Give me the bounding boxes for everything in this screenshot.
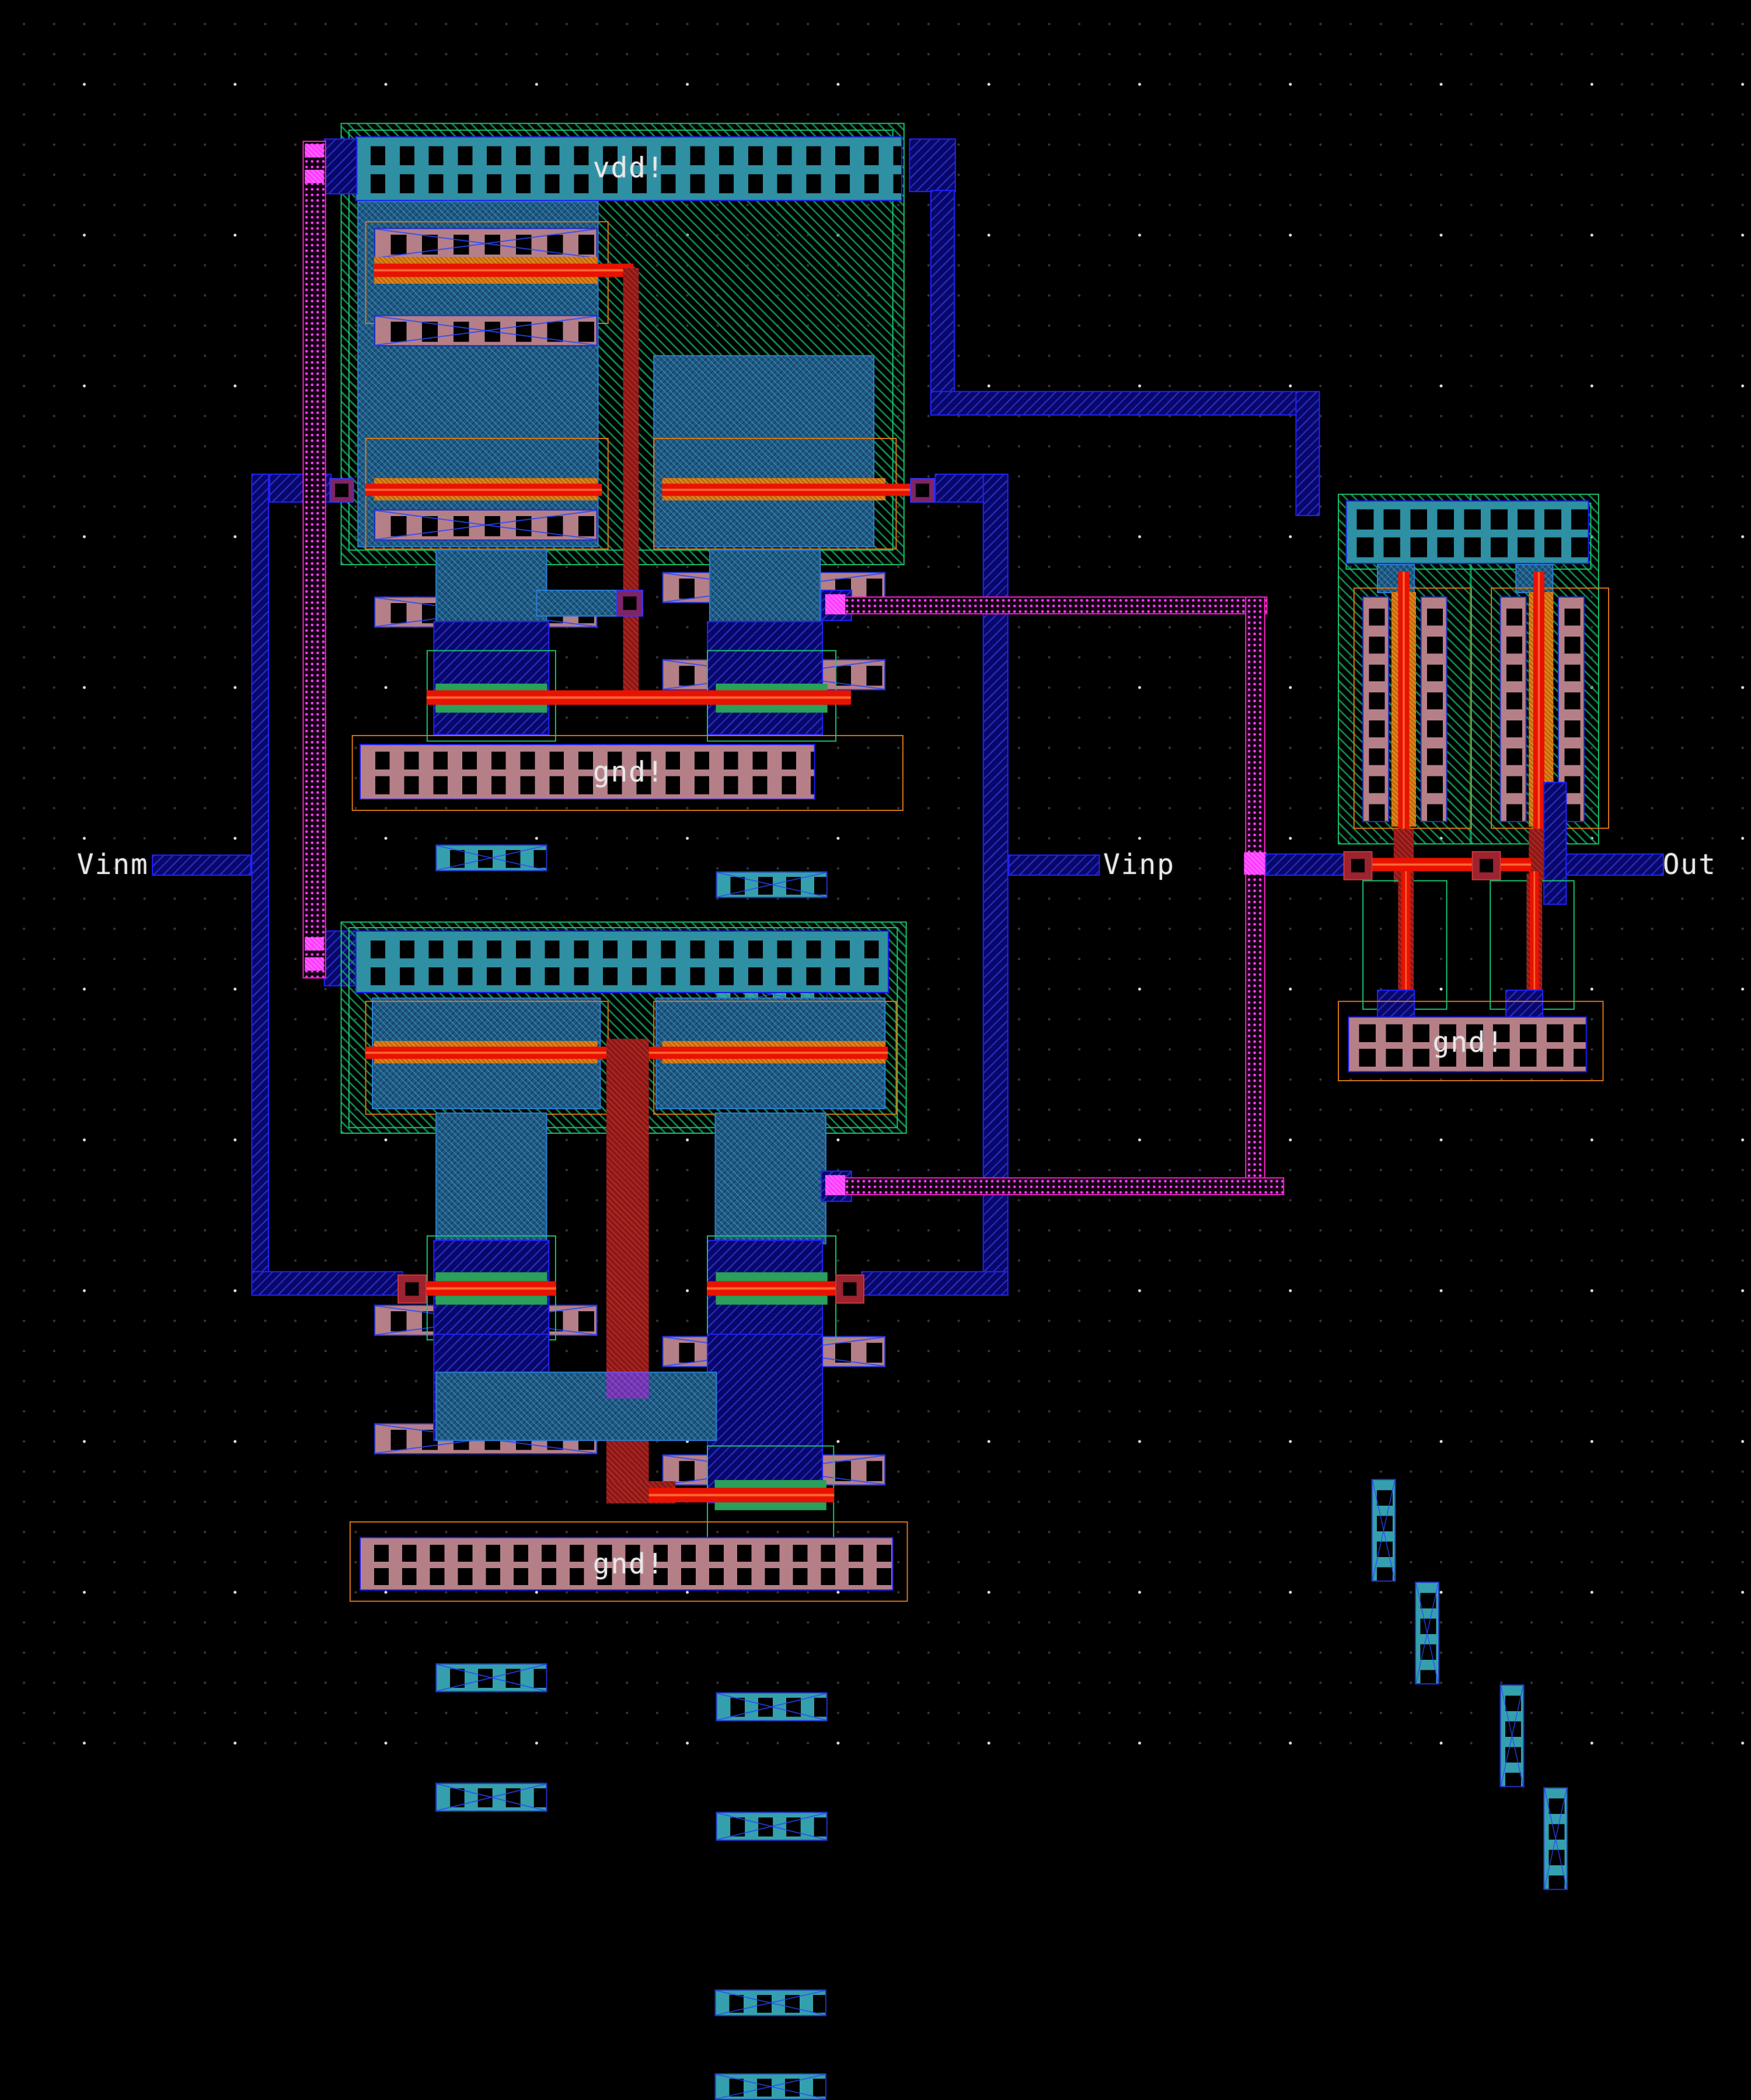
- metal1-column-right[interactable]: [709, 549, 821, 628]
- nmos-pair-right-gate-poly[interactable]: [707, 1281, 854, 1296]
- nmos-mirror-right-contacts-top[interactable]: [716, 871, 827, 898]
- metal1-column-stage2-left[interactable]: [435, 1113, 547, 1245]
- via3-vdd-top-2[interactable]: [305, 170, 324, 183]
- gnd-label-output: gnd!: [1433, 1026, 1505, 1058]
- contact-cut: [623, 597, 637, 610]
- nmos-tail-contacts-top[interactable]: [714, 1990, 826, 2017]
- vdd-rail-output[interactable]: [1345, 500, 1589, 564]
- metal1-stub-middle[interactable]: [536, 590, 620, 617]
- contact-cut: [843, 1282, 857, 1295]
- pmos-pair-left-contacts-top[interactable]: [374, 509, 598, 541]
- metal1-column-left[interactable]: [435, 549, 547, 628]
- poly-contact-middle[interactable]: [616, 590, 643, 617]
- nmos-mirror-left-contacts-top[interactable]: [435, 844, 547, 871]
- layout-canvas[interactable]: vdd! gnd! gnd! gnd! Vinm Vinp Out: [0, 0, 1751, 1751]
- nmos-tail-diff-top[interactable]: [714, 1480, 826, 1488]
- vinm-metal2-rail[interactable]: [251, 473, 269, 1284]
- nmos-out-left-contacts-b[interactable]: [1415, 1582, 1439, 1684]
- out-port-label: Out: [1663, 848, 1717, 880]
- metal3-route-lower[interactable]: [832, 1178, 1284, 1196]
- via3-vdd-top-1[interactable]: [305, 144, 324, 158]
- nmos-pair-left-gate-poly[interactable]: [409, 1281, 556, 1296]
- stage2-top-rail[interactable]: [355, 931, 889, 993]
- via3-upper[interactable]: [825, 594, 845, 614]
- gnd-label-stage2: gnd!: [593, 1548, 665, 1580]
- metal3-overlap-mark: [606, 1371, 649, 1398]
- via3-lower[interactable]: [825, 1175, 845, 1195]
- metal2-route-vertical-left[interactable]: [930, 190, 955, 415]
- pmos-out-left-contacts-b[interactable]: [1421, 597, 1447, 822]
- via3-rail2-2[interactable]: [305, 957, 324, 971]
- vdd-label: vdd!: [593, 151, 665, 183]
- nmos-out-right-contacts-b[interactable]: [1543, 1787, 1568, 1890]
- nmos-tail-diff-bottom[interactable]: [714, 1502, 826, 1510]
- via3-rail2-1[interactable]: [305, 937, 324, 950]
- metal1-bridge-bottom[interactable]: [435, 1371, 717, 1441]
- out-port-stub[interactable]: [1565, 854, 1663, 876]
- pmos-pair-left-gate-poly[interactable]: [365, 483, 602, 496]
- poly-route-mirror-gate[interactable]: [623, 268, 639, 692]
- poly-contact-out-gate-2[interactable]: [1472, 851, 1501, 880]
- vinm-metal2-elbow[interactable]: [251, 1271, 403, 1295]
- nmos-tail-contacts-bottom[interactable]: [714, 2073, 826, 2100]
- contact-cut: [1480, 859, 1493, 872]
- contact-cut: [335, 483, 348, 497]
- nmos-out-left-contacts-a[interactable]: [1371, 1479, 1396, 1582]
- vinp-port-label: Vinp: [1103, 848, 1175, 880]
- poly-contact-nmos-left-gate[interactable]: [397, 1274, 427, 1304]
- nmos-pair-left-contacts-bottom[interactable]: [435, 1783, 547, 1812]
- metal3-route-upper[interactable]: [832, 597, 1267, 615]
- vinp-port-stub[interactable]: [1009, 855, 1100, 876]
- nmos-mirror-right-diff-bottom[interactable]: [716, 705, 827, 712]
- nmos-mirror-gate-poly[interactable]: [427, 690, 851, 705]
- nmos-pair-right-contacts-bottom[interactable]: [716, 1812, 827, 1841]
- vinp-metal2-elbow[interactable]: [861, 1271, 1009, 1295]
- metal2-route-vertical-right[interactable]: [1295, 391, 1320, 516]
- nmos-mirror-left-diff-bottom[interactable]: [435, 705, 547, 712]
- pmos-mirror-gate-poly[interactable]: [374, 264, 633, 277]
- contact-cut: [916, 483, 929, 497]
- vinm-port-stub[interactable]: [152, 855, 251, 876]
- pmos-mirror-contacts-top[interactable]: [374, 228, 598, 259]
- nmos-pair-right-diff-bottom[interactable]: [716, 1295, 827, 1304]
- pmos-mirror-contacts-bottom[interactable]: [374, 315, 598, 347]
- metal3-route-vertical[interactable]: [1245, 597, 1265, 1196]
- metal2-stub-gate-right[interactable]: [934, 473, 986, 503]
- metal2-gate-line[interactable]: [1265, 854, 1346, 876]
- poly-contact-nmos-right-gate[interactable]: [835, 1274, 864, 1304]
- contact-cut: [406, 1282, 419, 1295]
- vinm-port-label: Vinm: [77, 848, 149, 880]
- nmos-tail-gate-poly[interactable]: [649, 1488, 835, 1502]
- nmos-pair-left-diff-bottom[interactable]: [435, 1295, 547, 1304]
- metal1-column-stage2-right[interactable]: [714, 1113, 826, 1245]
- via3-vinp-line[interactable]: [1244, 852, 1266, 875]
- metal2-conn-vdd-left[interactable]: [324, 138, 357, 194]
- nmos-pair-left-diff-top[interactable]: [435, 1272, 547, 1281]
- nmos-out-right-contacts-a[interactable]: [1500, 1684, 1525, 1787]
- nmos-pair-right-diff-top[interactable]: [716, 1272, 827, 1281]
- metal2-route-horizontal-top[interactable]: [930, 391, 1301, 416]
- pmos-out-left-contacts-a[interactable]: [1362, 597, 1389, 822]
- poly-contact-gate-right[interactable]: [910, 478, 934, 503]
- gnd-rail-stage1[interactable]: [360, 744, 815, 800]
- nmos-out-right-gate-poly[interactable]: [1530, 871, 1539, 1007]
- gnd-label-stage1: gnd!: [593, 755, 665, 788]
- poly-gate-line[interactable]: [1372, 858, 1531, 871]
- pmos-out-right-contacts-a[interactable]: [1500, 597, 1527, 822]
- nmos-pair-left-contacts-top[interactable]: [435, 1663, 547, 1692]
- metal2-vdd-corner[interactable]: [909, 138, 955, 192]
- nmos-pair-right-contacts-top[interactable]: [716, 1692, 827, 1722]
- contact-cut: [1351, 859, 1365, 872]
- metal3-vdd-strap[interactable]: [302, 141, 326, 978]
- pmos-pair-right-gate-poly[interactable]: [662, 483, 915, 496]
- poly-contact-gate-left[interactable]: [329, 478, 354, 503]
- poly-contact-out-gate-1[interactable]: [1344, 851, 1373, 880]
- vinp-metal2-rail[interactable]: [983, 473, 1009, 1284]
- nmos-out-left-gate-poly[interactable]: [1401, 871, 1410, 1007]
